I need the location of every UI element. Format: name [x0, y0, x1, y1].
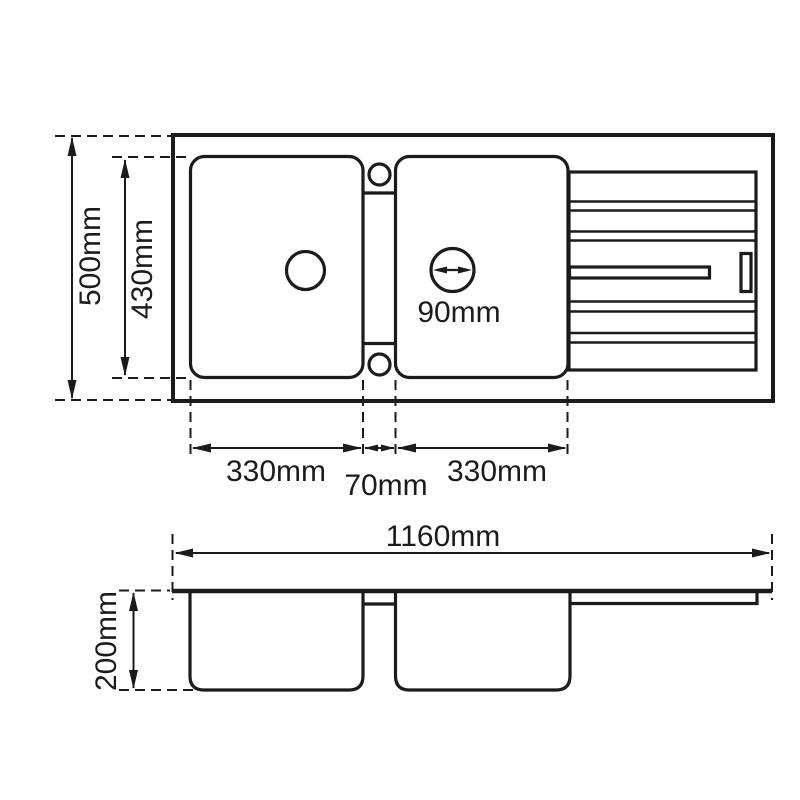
drawing-svg: 90mm 500mm: [0, 0, 800, 800]
arrowhead-left: [192, 444, 211, 453]
arrowhead-right: [752, 549, 771, 558]
bridge-hole-top: [369, 164, 390, 185]
arrowhead-up: [129, 592, 138, 611]
drain-diameter-label: 90mm: [417, 296, 500, 329]
arrowhead-up: [68, 137, 77, 156]
arrowhead-right: [381, 445, 395, 452]
sink-technical-drawing: 90mm 500mm: [0, 0, 800, 800]
side-view: [172, 591, 772, 690]
side-view-dimensions: 1160mm 200mm: [90, 520, 772, 691]
top-view: 90mm: [173, 135, 773, 401]
inner-depth-label: 430mm: [126, 219, 159, 319]
dimension-inner-depth: 430mm: [112, 157, 192, 378]
arrowhead-down: [68, 380, 77, 399]
drainboard-slot-horizontal: [570, 267, 710, 278]
arrowhead-left: [175, 549, 194, 558]
arrowhead-up: [121, 159, 130, 178]
gap-width-label: 70mm: [344, 469, 427, 502]
right-bowl-width-label: 330mm: [447, 455, 547, 488]
drainboard-slot-vertical: [741, 254, 751, 292]
arrowhead-down: [121, 357, 130, 376]
arrowhead-down: [129, 670, 138, 689]
dimension-bowl-height: 200mm: [90, 591, 198, 692]
dimension-bowl-widths: 330mm 70mm 330mm: [191, 380, 568, 502]
right-bowl-profile: [396, 593, 571, 690]
left-bowl-profile: [190, 593, 363, 690]
arrowhead-right: [343, 444, 362, 453]
overall-depth-label: 500mm: [74, 206, 107, 306]
overall-width-label: 1160mm: [386, 520, 501, 553]
right-bowl-top: [396, 157, 569, 378]
drainboard-profile: [570, 592, 757, 604]
arrowhead-left: [397, 444, 416, 453]
arrowhead-left: [365, 445, 379, 452]
bridge-hole-bottom: [369, 354, 390, 375]
drainboard: [569, 172, 756, 370]
left-bowl-top: [191, 157, 364, 378]
left-bowl-width-label: 330mm: [226, 455, 326, 488]
bowl-height-label: 200mm: [90, 591, 123, 691]
arrowhead-right: [548, 444, 567, 453]
dimension-overall-width: 1160mm: [173, 520, 773, 600]
